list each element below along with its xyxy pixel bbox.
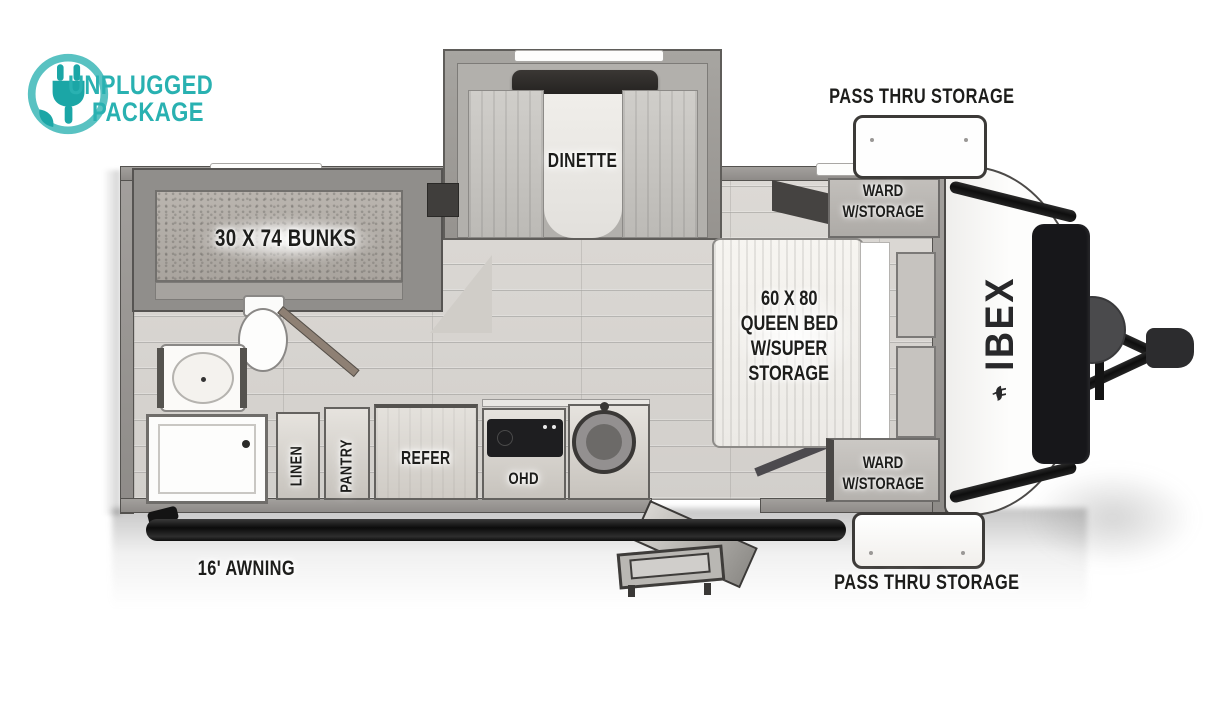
label-ward-top: WARD W/STORAGE bbox=[820, 180, 946, 226]
vanity-side-left bbox=[157, 348, 164, 408]
label-awning: 16' AWNING bbox=[176, 556, 316, 582]
floorplan-canvas: IBEX PASS THRU STORAGE PASS THRU STORAGE… bbox=[0, 0, 1206, 715]
cooktop-knob bbox=[552, 425, 556, 429]
cooktop-knob bbox=[543, 425, 547, 429]
label-dinette: DINETTE bbox=[500, 148, 666, 174]
pass-thru-door-bottom bbox=[852, 512, 985, 569]
nightstand-top bbox=[896, 252, 936, 338]
hitch-shadow bbox=[1030, 470, 1195, 565]
queen-bed-comforter-edge bbox=[860, 242, 890, 444]
door-latch bbox=[964, 138, 968, 142]
hitch-coupler bbox=[1146, 328, 1194, 368]
label-refer: REFER bbox=[376, 446, 476, 470]
shower-drain bbox=[242, 440, 250, 448]
vanity-side-right bbox=[240, 348, 247, 408]
label-ohd: OHD bbox=[484, 467, 564, 491]
bunk-wardrobe bbox=[427, 183, 459, 217]
cooktop-burner bbox=[497, 430, 513, 446]
skylight-dinette bbox=[514, 50, 664, 62]
step-leg bbox=[704, 583, 711, 595]
label-pass-thru-top: PASS THRU STORAGE bbox=[822, 85, 1022, 109]
label-queen-bed: 60 X 80 QUEEN BED W/SUPER STORAGE bbox=[714, 286, 864, 388]
rock-guard bbox=[1032, 224, 1090, 464]
label-bunks: 30 X 74 BUNKS bbox=[186, 226, 386, 252]
kitchen-sink-bowl bbox=[586, 424, 622, 460]
unplugged-logo-line2: PACKAGE bbox=[92, 97, 229, 128]
ibex-logo-text: IBEX bbox=[978, 276, 1023, 371]
cooktop bbox=[487, 419, 563, 457]
door-latch bbox=[869, 551, 873, 555]
left-wall-shadow bbox=[103, 170, 120, 515]
step-leg bbox=[628, 585, 635, 597]
ibex-logo: IBEX bbox=[978, 253, 1022, 423]
unplugged-package-logo: UNPLUGGED PACKAGE bbox=[22, 46, 252, 141]
label-pass-thru-bottom: PASS THRU STORAGE bbox=[827, 571, 1027, 595]
kitchen-faucet bbox=[600, 402, 609, 411]
label-ward-bottom: WARD W/STORAGE bbox=[816, 452, 950, 498]
vanity-drain bbox=[201, 377, 206, 382]
awning-rail bbox=[146, 519, 846, 541]
door-latch bbox=[961, 551, 965, 555]
goat-icon bbox=[989, 383, 1011, 405]
nightstand-bottom bbox=[896, 346, 936, 438]
pass-thru-door-top bbox=[853, 115, 987, 179]
door-latch bbox=[870, 138, 874, 142]
